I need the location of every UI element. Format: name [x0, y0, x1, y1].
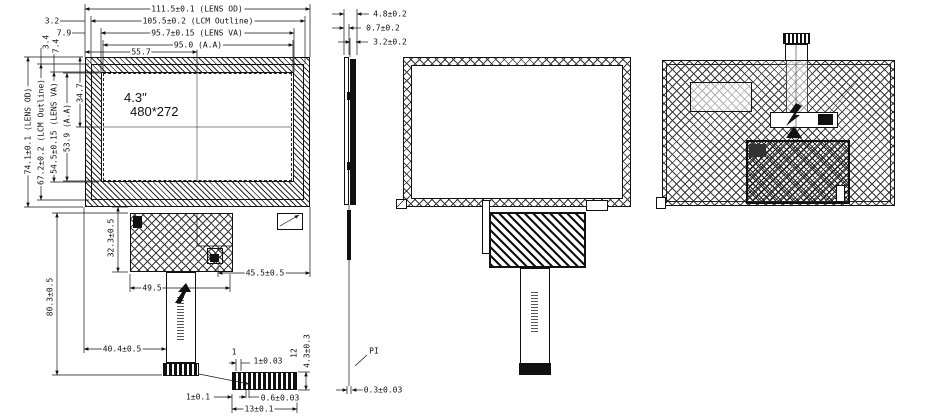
front-fpc-connector-fingers: [163, 363, 199, 376]
dim-fpc-offset: 40.4±0.5: [102, 345, 143, 354]
back-fpc-stiffener-block: [489, 212, 586, 268]
rear-slot: [836, 185, 845, 202]
dim-pcb-height: 32.3±0.5: [107, 218, 116, 259]
side-pi-film-label: PI: [368, 347, 380, 356]
front-pcb-connector-core: [210, 254, 219, 262]
dim-pcb-width: 49.5: [141, 284, 162, 293]
rear-fpc-tab: [785, 44, 808, 61]
rear-fpc-connector-top: [783, 33, 810, 44]
dim-offset-v2: 7.4: [52, 38, 61, 54]
dim-aa-v: 53.9 (A.A): [63, 103, 72, 153]
dim-connector-offset: 45.5±0.5: [245, 269, 286, 278]
rear-fpc-fold-path: [786, 61, 808, 113]
side-lens-glass: [344, 57, 349, 205]
rear-mount-foot: [656, 197, 666, 209]
side-total-thickness: 4.8±0.2: [372, 10, 408, 19]
side-tape-mark-2: [347, 162, 351, 170]
detail-pin-first: 1: [231, 348, 238, 357]
dim-lcm-outline-v: 67.2±0.2 (LCM Outline): [37, 78, 46, 186]
side-fpc-thickness: 0.3±0.03: [363, 386, 404, 395]
dim-aa-h: 95.0 (A.A): [173, 41, 223, 50]
screen-resolution-label: 480*272: [130, 105, 178, 118]
dim-lens-va-v: 54.5±0.15 (LENS VA): [50, 81, 59, 175]
detail-height: 4.3±0.3: [303, 333, 312, 369]
dim-lens-od-h: 111.5±0.1 (LENS OD): [150, 5, 244, 14]
dim-lens-va-h: 95.7±0.15 (LENS VA): [150, 29, 244, 38]
side-fpc-stiffener: [347, 210, 351, 260]
back-edge-notch: [586, 200, 608, 211]
front-corner-flag: [277, 213, 303, 230]
detail-connector-fingers: [232, 372, 297, 390]
screen-size-label: 4.3": [124, 91, 147, 104]
front-pcb-component: [133, 216, 142, 228]
rear-square-mark: [818, 114, 833, 125]
side-tape-mark-1: [347, 92, 351, 100]
detail-pin-last: 12: [290, 347, 299, 359]
detail-total-width: 13±0.1: [244, 405, 275, 414]
dim-lens-od-v: 74.1±0.1 (LENS OD): [24, 87, 33, 176]
side-lcm-body: [350, 59, 356, 205]
detail-margin: 1±0.1: [185, 393, 211, 402]
side-lens-thickness: 0.7±0.2: [365, 24, 401, 33]
dim-offset-h1: 3.2: [44, 17, 60, 26]
back-fpc-connector-end: [519, 363, 551, 375]
dim-lcm-outline-h: 105.5±0.2 (LCM Outline): [142, 17, 255, 26]
dim-center-h: 55.7: [130, 48, 151, 57]
side-module-thickness: 3.2±0.2: [372, 38, 408, 47]
rear-label-area: [690, 82, 752, 112]
rear-component-mark: [749, 144, 766, 157]
dim-fpc-length: 80.3±0.5: [46, 277, 55, 318]
front-fpc-part-number-text: [177, 295, 184, 340]
back-interior: [411, 65, 623, 199]
detail-pitch: 1±0.03: [253, 357, 284, 366]
lcd-module-mechanical-drawing: 4.3" 480*272: [0, 0, 930, 417]
back-mount-foot: [396, 199, 407, 209]
dim-center-v: 34.7: [76, 82, 85, 103]
back-fpc-part-number-text: [531, 292, 538, 332]
dim-offset-v1: 3.4: [42, 34, 51, 50]
dim-offset-h2: 7.9: [56, 29, 72, 38]
detail-finger-width: 0.6±0.03: [260, 394, 301, 403]
